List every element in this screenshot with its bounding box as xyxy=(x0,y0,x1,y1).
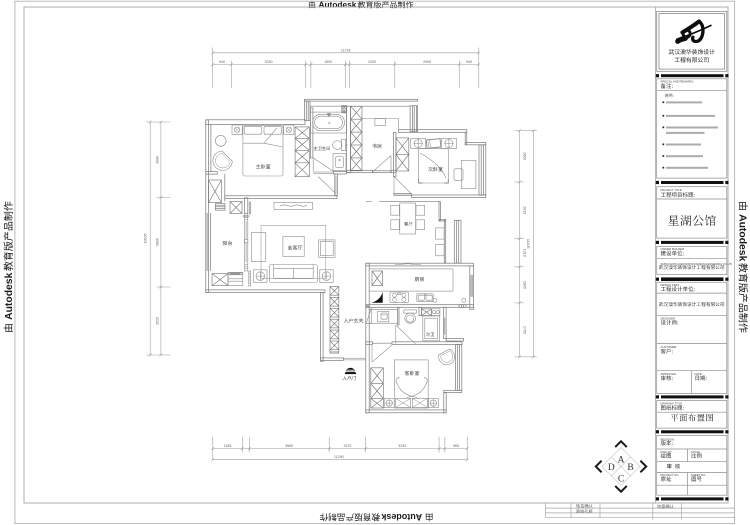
svg-text:REVISION: REVISION xyxy=(661,437,674,441)
svg-text:PROJECT TITLE: PROJECT TITLE xyxy=(661,188,682,192)
svg-text:DRAWING TITLE: DRAWING TITLE xyxy=(661,402,683,406)
svg-text:2600: 2600 xyxy=(522,152,526,160)
svg-text:B: B xyxy=(627,463,633,473)
svg-text:3515: 3515 xyxy=(155,317,159,325)
svg-text:3330: 3330 xyxy=(265,60,273,64)
svg-text:2615: 2615 xyxy=(522,206,526,214)
svg-text:11290: 11290 xyxy=(334,455,344,459)
svg-text:APPROVED: APPROVED xyxy=(661,372,677,376)
svg-text:1570: 1570 xyxy=(343,444,351,448)
svg-text:C: C xyxy=(618,474,624,484)
svg-text:11718: 11718 xyxy=(341,49,351,53)
svg-text:1590: 1590 xyxy=(324,60,332,64)
svg-text:940: 940 xyxy=(219,60,225,64)
svg-text:1310: 1310 xyxy=(522,249,526,257)
svg-text:1930: 1930 xyxy=(368,60,376,64)
svg-text:OWNER BUILDER: OWNER BUILDER xyxy=(661,247,685,251)
svg-text:2905: 2905 xyxy=(423,60,431,64)
svg-text:D: D xyxy=(608,463,615,473)
svg-text:940: 940 xyxy=(466,60,472,64)
svg-text:10635: 10635 xyxy=(144,234,148,244)
svg-text:3230: 3230 xyxy=(398,444,406,448)
svg-text:3860: 3860 xyxy=(155,238,159,246)
svg-text:A: A xyxy=(618,456,625,466)
svg-text:3560: 3560 xyxy=(285,444,293,448)
svg-text:WUHAN AOHUA DECORATION DESIGN: WUHAN AOHUA DECORATION DESIGN ENGINEERIN… xyxy=(661,263,733,266)
svg-text:DATE: DATE xyxy=(695,372,702,376)
svg-text:11405: 11405 xyxy=(526,239,530,249)
svg-text:965: 965 xyxy=(453,444,459,448)
svg-text:1185: 1185 xyxy=(224,444,232,448)
svg-text:3080: 3080 xyxy=(155,156,159,164)
svg-text:CUSTOMER: CUSTOMER xyxy=(661,345,677,349)
svg-text:SHEET NO.: SHEET NO. xyxy=(691,473,706,477)
svg-text:2795: 2795 xyxy=(522,326,526,334)
svg-text:SPECIAL AND REMARKS: SPECIAL AND REMARKS xyxy=(661,80,694,84)
svg-text:1805: 1805 xyxy=(522,281,526,289)
